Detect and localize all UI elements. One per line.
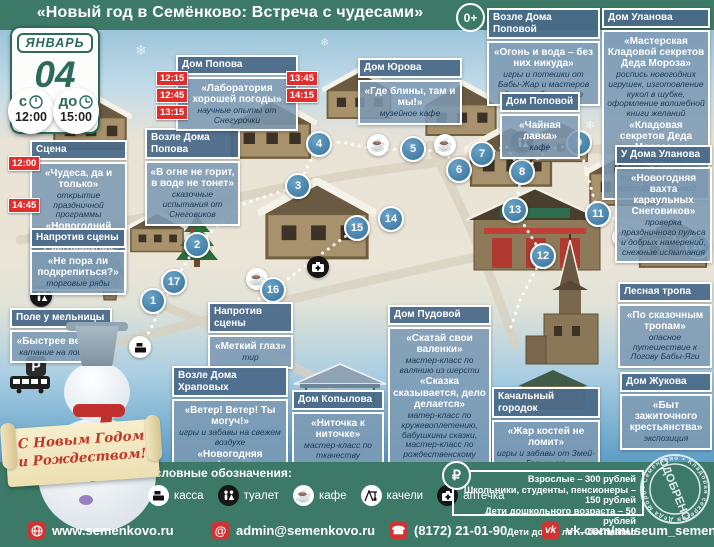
map-marker[interactable]: 2: [184, 232, 210, 258]
infobox-header: Лесная тропа: [618, 282, 712, 302]
event-name: «Меткий глаз»: [213, 341, 288, 352]
event-name: «Мастерская Кладовой секретов Деда Мороз…: [607, 36, 705, 70]
event-name: «Ниточка к ниточке»: [297, 418, 379, 440]
event-desc: проверка праздничного пульса и добрых на…: [620, 218, 707, 257]
event-name: «Чудеса, да и только»: [35, 168, 122, 190]
swing-icon: [361, 485, 382, 506]
legend-title: Условные обозначения:: [148, 466, 292, 480]
infobox-header: Дом Пудовой: [388, 305, 491, 325]
website-text: www.semenkovo.ru: [52, 523, 174, 538]
at-icon: @: [212, 522, 229, 539]
event-desc: кафе: [505, 143, 575, 153]
snowman-scarf: [73, 404, 125, 417]
price-line: Взрослые – 300 рублей: [460, 474, 636, 485]
end-time-label: до: [59, 93, 78, 110]
infobox-header: Дом Юрова: [358, 58, 462, 78]
cafe-icon: ☕: [434, 134, 456, 156]
event-name: «Жар костей не ломит»: [497, 426, 595, 448]
start-time-clock: с 12:00: [8, 88, 54, 134]
infobox-naprotiv-sceny-food: Напротив сцены «Не пора ли подкрепиться?…: [30, 228, 126, 295]
cash-register-icon: [148, 485, 169, 506]
infobox-dom-popova: 12:15 12:45 13:15 13:45 14:15 Дом Попова…: [176, 55, 298, 131]
time-badge: 14:15: [286, 88, 318, 103]
map-marker[interactable]: 8: [509, 159, 535, 185]
event-desc: открытие праздничной программы: [35, 191, 122, 220]
infobox-header: Дом Копылова: [292, 390, 384, 410]
infobox-header: Сцена: [30, 140, 127, 160]
cash-register-icon: [129, 336, 151, 358]
event-desc: тир: [213, 353, 288, 363]
approved-stamp: • Семёнково • Кладовая секретов Деда Мор…: [636, 450, 714, 528]
scroll-roll: [145, 414, 163, 461]
greeting-banner: С Новым Годом и Рождеством!: [4, 419, 160, 487]
time-badge: 14:45: [8, 198, 40, 213]
ruble-icon: ₽: [442, 461, 471, 490]
infobox-dom-pudovoy: Дом Пудовой «Скатай свои валенки» мастер…: [388, 305, 491, 476]
legend-label: качели: [387, 490, 424, 502]
start-time-label: с: [19, 93, 27, 110]
time-badge: 12:15: [156, 71, 188, 86]
event-name: «В огне не горит, в воде не тонет»: [150, 167, 235, 189]
event-name: «Лаборатория хорошей погоды»: [181, 83, 293, 105]
cafe-icon: ☕: [293, 485, 314, 506]
calendar-month: ЯНВАРЬ: [17, 33, 93, 53]
infobox-header: Возле Дома Попова: [145, 128, 240, 159]
legend-label: касса: [174, 490, 204, 502]
map-marker[interactable]: 3: [285, 173, 311, 199]
event-desc: роспись новогодних игрушек, изготовление…: [607, 70, 705, 119]
price-line: Школьники, студенты, пенсионеры – 150 ру…: [460, 485, 636, 506]
clock-icon: [29, 95, 43, 109]
infobox-header: Дом Попова: [176, 55, 298, 75]
event-desc: сказочные испытания от Снеговиков: [150, 190, 235, 219]
infobox-dom-popovoy: Дом Поповой «Чайная лавка» кафе: [500, 92, 580, 159]
clock-icon: [79, 95, 93, 109]
end-time: 15:00: [53, 110, 99, 124]
event-desc: музейное кафе: [363, 109, 457, 119]
legend-item-cafe: ☕ кафе: [293, 485, 347, 506]
infobox-header: Возле Дома Храповых: [172, 366, 288, 397]
cafe-icon: ☕: [367, 134, 389, 156]
age-rating-badge: 0+: [456, 3, 485, 32]
event-desc: матер-класс по кружевоплетению, бабушкин…: [393, 411, 486, 470]
snowman-button: [79, 495, 93, 505]
event-name: «Не пора ли подкрепиться?»: [35, 256, 121, 278]
legend-label: туалет: [244, 490, 279, 502]
infobox-lesnaya-tropa: Лесная тропа «По сказочным тропам» опасн…: [618, 282, 712, 368]
vk-icon: vk: [542, 522, 559, 539]
page-title: «Новый год в Семёнково: Встреча с чудеса…: [6, 4, 454, 22]
map-marker[interactable]: 11: [585, 201, 611, 227]
map-marker[interactable]: 15: [344, 215, 370, 241]
event-desc: мастер-класс по валянию из шерсти: [393, 356, 486, 376]
price-list: Взрослые – 300 рублей Школьники, студент…: [452, 470, 644, 516]
map-marker[interactable]: 13: [502, 197, 528, 223]
email-text: admin@semenkovo.ru: [236, 523, 375, 538]
time-badge: 12:00: [8, 156, 40, 171]
map-marker[interactable]: 4: [306, 131, 332, 157]
time-badge: 13:15: [156, 105, 188, 120]
event-name: «Чайная лавка»: [505, 120, 575, 142]
map-marker[interactable]: 6: [446, 157, 472, 183]
toilet-icon: [218, 485, 239, 506]
event-desc: экспозиция: [625, 434, 707, 444]
map-marker[interactable]: 16: [260, 277, 286, 303]
infobox-naprotiv-sceny-tir: Напротив сцены «Меткий глаз» тир: [208, 302, 293, 369]
event-poster: ❄ ❄ ❄ ❄ ❄ ❄ «Новый год в Семёнково: Встр…: [0, 0, 714, 547]
event-name: «Сказка сказывается, дело делается»: [393, 376, 486, 410]
phone-link[interactable]: ☎ (8172) 21-01-90: [390, 522, 507, 539]
event-name: «Огонь и вода – без них никуда»: [492, 47, 595, 69]
time-badge: 13:45: [286, 71, 318, 86]
event-desc: мастер-класс по ткачеству: [297, 441, 379, 461]
bus-icon: [8, 374, 54, 399]
infobox-header: Дом Жукова: [620, 372, 712, 392]
infobox-header: Напротив сцены: [208, 302, 293, 333]
end-time-clock: до 15:00: [53, 88, 99, 134]
map-marker[interactable]: 7: [469, 141, 495, 167]
website-link[interactable]: www.semenkovo.ru: [28, 522, 174, 539]
event-desc: торговые ряды: [35, 279, 121, 289]
infobox-header: Дом Поповой: [500, 92, 580, 112]
infobox-dom-kopylova: Дом Копылова «Ниточка к ниточке» мастер-…: [292, 390, 384, 466]
phone-icon: ☎: [390, 522, 407, 539]
event-name: «Ветер! Ветер! Ты могуч!»: [177, 405, 283, 427]
map-marker[interactable]: 14: [378, 206, 404, 232]
event-name: «Новогодняя вахта караульных Снеговиков»: [620, 173, 707, 218]
map-marker[interactable]: 12: [530, 243, 556, 269]
infobox-header: Дом Уланова: [602, 8, 710, 28]
map-marker[interactable]: 5: [400, 136, 426, 162]
infobox-header: У Дома Уланова: [615, 145, 712, 165]
infobox-header: Возле Дома Поповой: [487, 8, 600, 39]
legend-label: кафе: [319, 490, 347, 502]
legend-item-kassa: касса: [148, 485, 204, 506]
event-desc: опасное путешествие к Логову Бабы-Яги: [623, 333, 707, 362]
globe-icon: [28, 522, 45, 539]
start-time: 12:00: [8, 110, 54, 124]
event-name: «Где блины, там и мы!»: [363, 86, 457, 108]
infobox-u-doma-ulanova: У Дома Уланова «Новогодняя вахта карауль…: [615, 145, 712, 263]
event-name: «Быт зажиточного крестьянства»: [625, 400, 707, 434]
event-name: «Скатай свои валенки»: [393, 333, 486, 355]
infobox-dom-zhukova: Дом Жукова «Быт зажиточного крестьянства…: [620, 372, 712, 450]
first-aid-icon: [307, 256, 329, 278]
map-marker[interactable]: 17: [161, 269, 187, 295]
phone-text: (8172) 21-01-90: [414, 523, 507, 538]
event-desc: игры и забавы на свежем воздухе: [177, 428, 283, 448]
infobox-header: Качальный городок: [492, 387, 600, 418]
legend-item-toilet: туалет: [218, 485, 279, 506]
map-marker[interactable]: 1: [140, 288, 166, 314]
infobox-dom-yurova: Дом Юрова «Где блины, там и мы!» музейно…: [358, 58, 462, 125]
scroll-roll: [0, 423, 18, 470]
email-link[interactable]: @ admin@semenkovo.ru: [212, 522, 375, 539]
event-desc: научные опыты от Снегурочки: [181, 106, 293, 126]
infobox-vozle-doma-popova: Возле Дома Попова «В огне не горит, в во…: [145, 128, 240, 226]
infobox-header: Напротив сцены: [30, 228, 126, 248]
time-badge: 12:45: [156, 88, 188, 103]
event-name: «По сказочным тропам»: [623, 310, 707, 332]
legend-item-swing: качели: [361, 485, 424, 506]
